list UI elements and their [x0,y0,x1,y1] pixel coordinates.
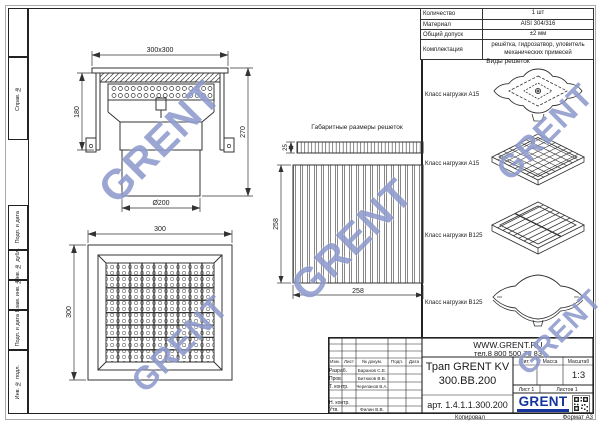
drawing-sheet: { "watermark": { "text": "GRENT", "color… [0,0,600,424]
spec-label: Комплектация [421,40,483,59]
col-izm: Изм. [328,359,342,364]
spec-label: Материал [421,20,483,29]
dim-300-top: 300 [154,226,166,233]
grate-label-1: Класс нагрузки А15 [425,92,491,99]
col-data: Дата [406,359,422,364]
frame-label: Справ. № [15,86,21,111]
signer-role: Т. контр. [329,384,356,390]
signer-role: Пров. [329,376,356,382]
spec-row: Материал AISI 304/316 [421,20,593,30]
dim-180: 180 [74,106,81,118]
lit-label: Лит. [513,359,537,365]
grate-label-4: Класс нагрузки В125 [425,300,491,307]
dim-d200: Ø200 [152,200,169,207]
dim-300x300: 300x300 [147,47,174,54]
scale-value: 1:3 [563,370,594,381]
signer-name: Филин В.В. [356,407,388,412]
frame-cell-podp-data-2: Подп. и дата [8,310,28,350]
format-note: Формат А3 [543,415,593,421]
spec-label: Количество [421,9,483,19]
dim-25: 25 [283,144,289,151]
signer-role: Утв. [329,407,356,413]
spec-row: Количество 1 шт [421,9,593,20]
title-block: Изм. Лист № докум. Подп. Дата Разраб. Ба… [328,337,594,414]
grate-dim-title: Габаритные размеры решеток [287,124,427,131]
spec-value: решётка, гидрозатвор, уловитель механиче… [483,40,593,59]
grate-label-2: Класс нагрузки А15 [425,161,491,168]
frame-cell-inv-dubl: Инв. № дубл. [8,250,28,280]
frame-cell-sprav: Справ. № [8,57,28,140]
spec-value: 1 шт [483,9,593,19]
kopiroval-note: Копировал [400,415,540,421]
grate-figure-mesh-a15 [488,130,588,198]
scale-label: Масштаб [563,359,594,365]
phone: тел.8 800 500 76 83 [422,349,594,358]
dim-258-bottom: 258 [352,288,364,295]
col-list: Лист [342,359,356,364]
signer-name: Баранов С.Е. [356,368,388,373]
grate-dimensions-drawing: 25 258 258 [268,135,433,305]
spec-row: Комплектация решётка, гидрозатвор, улови… [421,40,593,59]
signer-name: Черепанов В.А. [356,384,388,389]
product-title-line1: Трап GRENT KV [422,361,513,373]
frame-label: Взам. инв. № [15,278,21,312]
mass-label: Масса [537,359,563,365]
grate-figure-slotted-b125 [488,198,588,266]
spec-table: Количество 1 шт Материал AISI 304/316 Об… [420,8,594,60]
frame-label: Подп. и дата [15,314,21,346]
grate-figure-decorative-a15 [488,64,588,130]
frame-cell-inv-podl: Инв. № подл. [8,350,28,414]
spec-label: Общий допуск [421,30,483,39]
qr-code [572,395,590,413]
col-dokum: № докум. [356,359,388,364]
dim-270: 270 [240,126,247,138]
article-number: арт. 1.4.1.1.300.200 [422,400,513,410]
grate-label-3: Класс нагрузки В125 [425,233,491,240]
frame-label: Подп. и дата [15,211,21,243]
grent-logo: GRENT [517,395,569,409]
grate-figure-solid-b125 [488,268,588,332]
spec-value: ±2 мм [483,30,593,39]
sheet-number: Лист 1 [514,387,539,393]
section-view-drawing: 300x300 180 270 Ø200 [30,42,270,222]
dim-300-left: 300 [66,306,73,318]
spec-value: AISI 304/316 [483,20,593,29]
frame-label: Инв. № дубл. [15,248,21,282]
product-title-line2: 300.BB.200 [422,375,513,387]
signer-role: Н. контр. [329,400,356,406]
frame-cell-perv-primen [8,8,28,57]
spec-row: Общий допуск ±2 мм [421,30,593,40]
sheets-total: Листов 1 [540,387,594,393]
frame-cell-podp-data-1: Подп. и дата [8,205,28,250]
grent-logo-tagline-bar [517,409,569,412]
col-podp: Подп. [388,359,406,364]
plan-view-drawing: 300 300 [55,222,245,392]
dim-258-left: 258 [273,218,280,230]
frame-cell-vzam-inv: Взам. инв. № [8,280,28,310]
signer-name: Битюков В.В. [356,376,388,381]
frame-label: Инв. № подл. [15,365,21,399]
signer-role: Разраб. [329,368,356,374]
